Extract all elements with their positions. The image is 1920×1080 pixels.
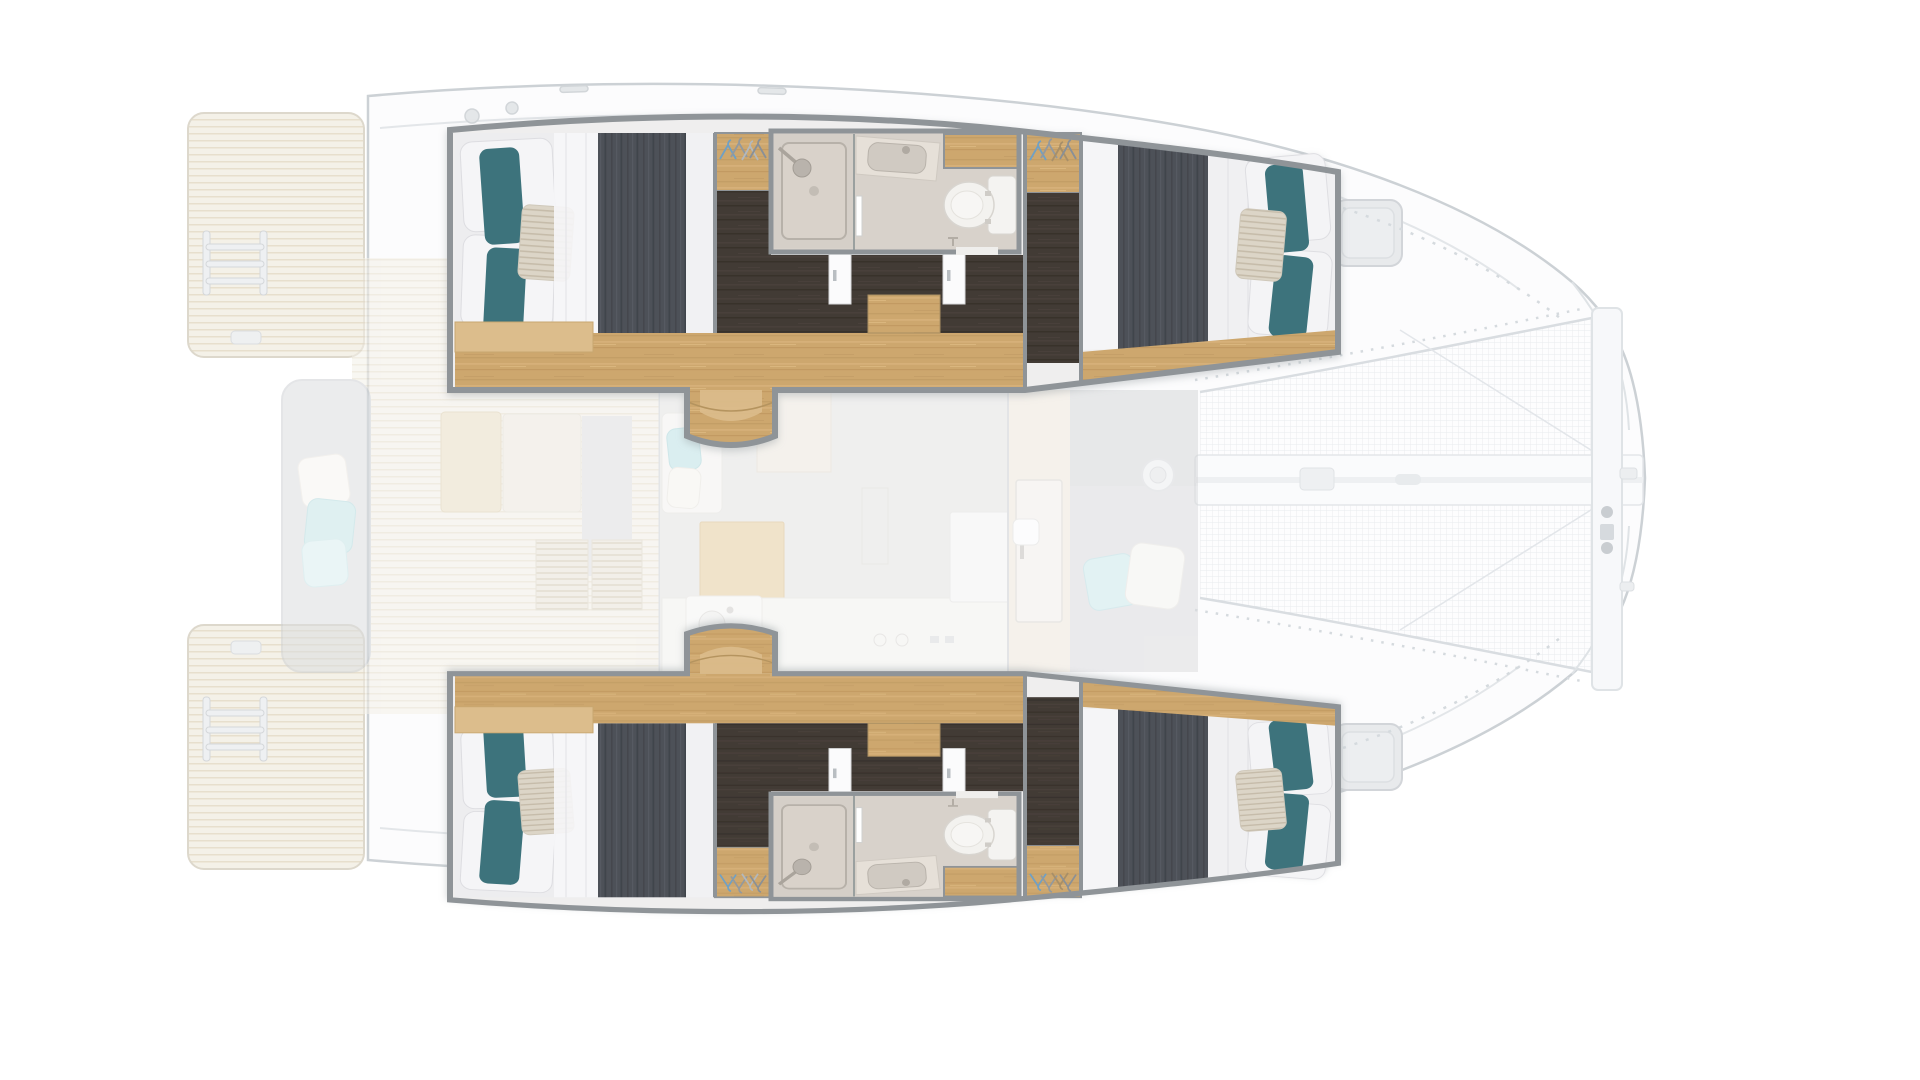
- sink-basin: [867, 142, 927, 174]
- cubby-shelf: [1013, 519, 1039, 545]
- faucet-icon: [902, 146, 910, 154]
- faucet-icon: [727, 607, 734, 614]
- deck-hatch-top: [1334, 200, 1402, 266]
- bathroom: [771, 131, 1019, 255]
- bow-cleat: [1620, 582, 1634, 591]
- nav-desk: [868, 295, 940, 333]
- pillow-teal: [479, 147, 526, 246]
- door-handle-icon: [1020, 545, 1024, 559]
- transom-step: [231, 331, 261, 344]
- louvered-locker: [592, 540, 642, 610]
- walkway-dark: [1025, 193, 1081, 363]
- cabin-door: [943, 250, 965, 304]
- louvered-locker: [536, 540, 588, 610]
- overhead-cabinet: [944, 134, 1019, 168]
- toilet-room: [944, 134, 1019, 250]
- wardrobe: [1025, 133, 1081, 193]
- companionway-stairs: [687, 390, 775, 445]
- wardrobe: [715, 133, 771, 191]
- cushion-white: [1124, 542, 1186, 611]
- deck-hatch-bottom: [1334, 724, 1402, 790]
- pillow-striped: [1235, 208, 1287, 282]
- cockpit-seat: [503, 414, 581, 512]
- cockpit-table: [441, 412, 501, 512]
- shower-door-handle: [856, 196, 862, 236]
- fridge: [950, 512, 1012, 602]
- catamaran-floorplan: [0, 0, 1920, 1080]
- aft-cabin: [455, 133, 715, 335]
- showerhead-icon: [793, 159, 811, 177]
- bathroom-door-gap: [956, 247, 998, 255]
- bow-cleat: [1620, 468, 1637, 479]
- duvet-edge: [686, 133, 715, 333]
- door-handle-icon: [833, 270, 837, 281]
- swim-platform-top: [188, 113, 364, 357]
- drain-icon: [809, 186, 819, 196]
- transom-step: [231, 641, 261, 654]
- duvet-dark: [1118, 141, 1208, 349]
- cushion-cyan-pale: [301, 538, 349, 588]
- duvet-dark: [598, 133, 686, 333]
- door-handle-icon: [947, 270, 951, 281]
- sheet-fold: [554, 133, 602, 333]
- cushion-white: [666, 467, 701, 510]
- shower: [774, 134, 854, 248]
- walkway-dark: [715, 191, 771, 333]
- bed-foot: [1081, 137, 1118, 350]
- toilet-seat: [951, 191, 983, 219]
- wood-step: [455, 322, 593, 352]
- cabin-door: [829, 250, 851, 304]
